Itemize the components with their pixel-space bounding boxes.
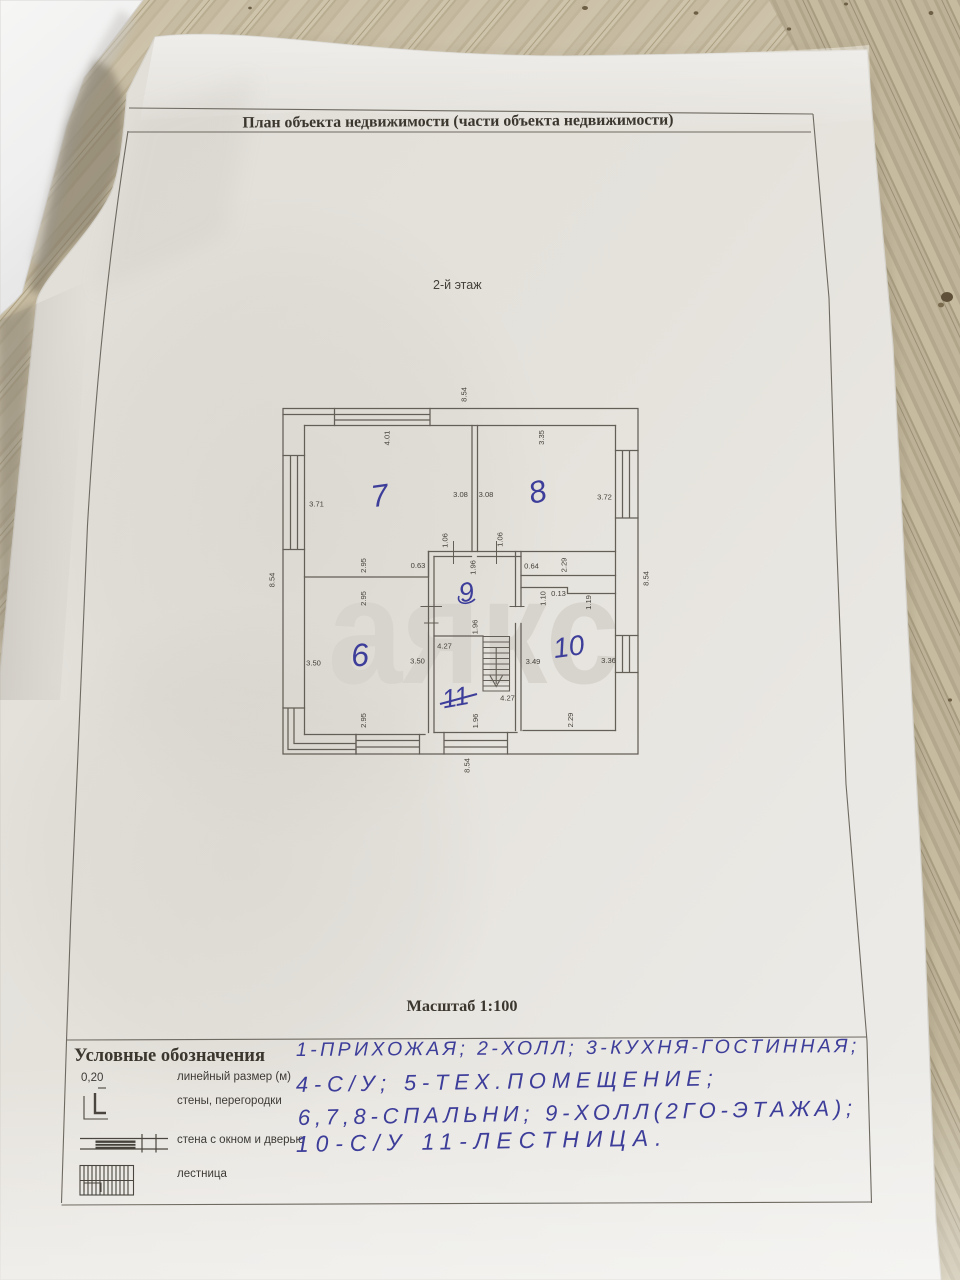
svg-text:1.96: 1.96 — [469, 560, 478, 575]
svg-text:8.54: 8.54 — [642, 571, 651, 586]
svg-text:1.06: 1.06 — [441, 533, 450, 548]
svg-text:0,20: 0,20 — [81, 1072, 103, 1084]
svg-text:2.95: 2.95 — [359, 558, 368, 573]
svg-text:1-ПРИХОЖАЯ; 2-ХОЛЛ; 3-КУХНЯ-ГО: 1-ПРИХОЖАЯ; 2-ХОЛЛ; 3-КУХНЯ-ГОСТИННАЯ; — [296, 1035, 860, 1061]
svg-text:3.71: 3.71 — [309, 500, 324, 509]
svg-text:лестница: лестница — [177, 1168, 227, 1180]
svg-text:1.10: 1.10 — [539, 591, 548, 606]
svg-text:2.95: 2.95 — [359, 591, 368, 606]
svg-text:4.27: 4.27 — [437, 642, 452, 651]
svg-text:линейный размер (м): линейный размер (м) — [177, 1071, 291, 1083]
svg-text:2.95: 2.95 — [359, 713, 368, 728]
svg-text:1.06: 1.06 — [496, 532, 505, 547]
svg-text:4.01: 4.01 — [383, 431, 392, 446]
svg-text:3.08: 3.08 — [479, 490, 494, 499]
svg-text:10: 10 — [551, 629, 587, 664]
svg-text:1.19: 1.19 — [584, 595, 593, 610]
svg-text:2.29: 2.29 — [566, 713, 575, 728]
svg-text:8.54: 8.54 — [460, 387, 469, 402]
svg-text:План объекта недвижимости (час: План объекта недвижимости (части объекта… — [242, 111, 673, 131]
svg-text:стены, перегородки: стены, перегородки — [177, 1095, 282, 1107]
svg-text:2-й этаж: 2-й этаж — [433, 278, 482, 292]
svg-text:1.96: 1.96 — [471, 714, 480, 729]
svg-text:3.49: 3.49 — [526, 657, 541, 666]
svg-text:0.13: 0.13 — [551, 589, 566, 598]
svg-text:1.96: 1.96 — [471, 620, 480, 635]
svg-text:3.50: 3.50 — [410, 657, 425, 666]
svg-text:Масштаб 1:100: Масштаб 1:100 — [406, 996, 517, 1015]
svg-text:3.08: 3.08 — [453, 490, 468, 499]
svg-text:8.54: 8.54 — [268, 573, 277, 588]
svg-text:2.29: 2.29 — [560, 558, 569, 573]
svg-text:3.50: 3.50 — [306, 659, 321, 668]
svg-text:стена с окном и дверью: стена с окном и дверью — [177, 1134, 305, 1146]
svg-text:8.54: 8.54 — [463, 758, 472, 773]
svg-text:0.63: 0.63 — [411, 561, 426, 570]
svg-text:Условные обозначения: Условные обозначения — [74, 1046, 265, 1066]
svg-text:3.72: 3.72 — [597, 493, 612, 502]
svg-text:3.36: 3.36 — [601, 656, 616, 665]
svg-text:4.27: 4.27 — [500, 694, 515, 703]
svg-text:0.64: 0.64 — [524, 562, 539, 571]
svg-text:3.35: 3.35 — [537, 430, 546, 445]
